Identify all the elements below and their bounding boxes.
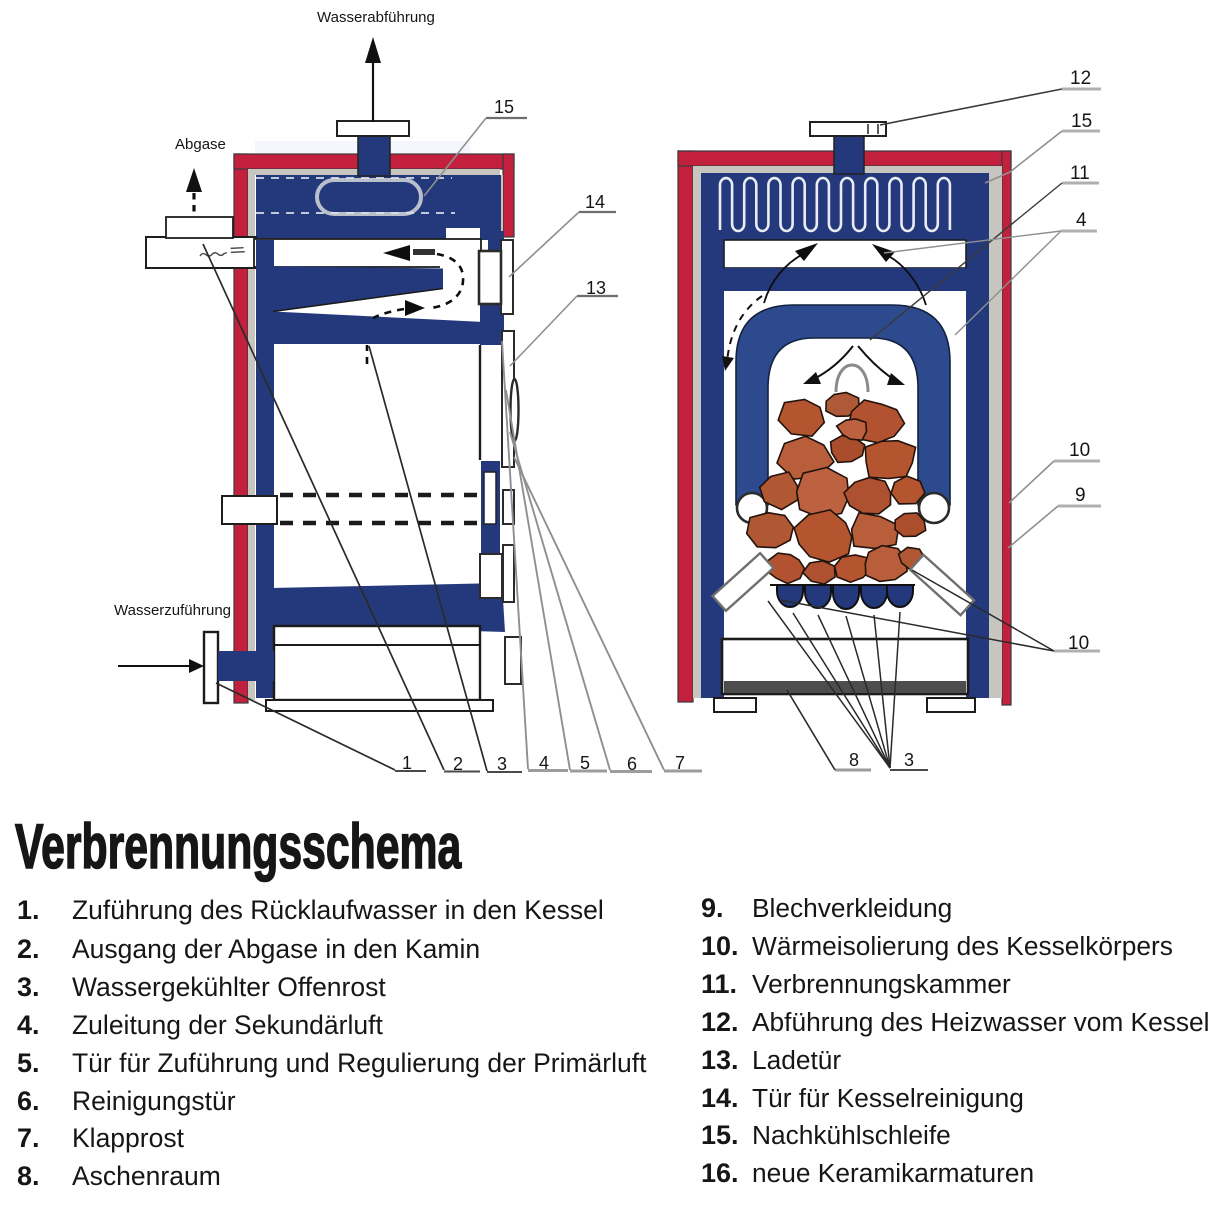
- svg-text:11: 11: [1070, 163, 1090, 184]
- svg-text:9.: 9.: [701, 893, 724, 923]
- svg-text:12: 12: [1070, 68, 1091, 89]
- svg-text:Nachkühlschleife: Nachkühlschleife: [752, 1120, 951, 1150]
- svg-text:Klapprost: Klapprost: [72, 1123, 185, 1153]
- svg-text:Verbrennungsschema: Verbrennungsschema: [15, 812, 462, 882]
- svg-text:4: 4: [1076, 210, 1087, 231]
- svg-text:Tür für Zuführung und Regulier: Tür für Zuführung und Regulierung der Pr…: [72, 1048, 647, 1078]
- svg-text:Reinigungstür: Reinigungstür: [72, 1086, 236, 1116]
- svg-text:6.: 6.: [17, 1086, 40, 1116]
- svg-text:Verbrennungskammer: Verbrennungskammer: [752, 969, 1011, 999]
- svg-text:4.: 4.: [17, 1010, 40, 1040]
- svg-text:8.: 8.: [17, 1161, 40, 1191]
- svg-text:15: 15: [494, 97, 514, 117]
- svg-text:Zuführung des Rücklaufwasser i: Zuführung des Rücklaufwasser in den Kess…: [72, 895, 604, 925]
- svg-text:16.: 16.: [701, 1158, 739, 1188]
- svg-text:5.: 5.: [17, 1048, 40, 1078]
- svg-text:Ausgang der Abgase in den Kami: Ausgang der Abgase in den Kamin: [72, 934, 480, 964]
- svg-text:10: 10: [1069, 440, 1090, 461]
- svg-text:15.: 15.: [701, 1120, 739, 1150]
- svg-text:14.: 14.: [701, 1083, 739, 1113]
- svg-text:Wassergekühlter Offenrost: Wassergekühlter Offenrost: [72, 972, 386, 1002]
- svg-text:3: 3: [904, 750, 914, 770]
- svg-text:2.: 2.: [17, 934, 40, 964]
- svg-text:Ladetür: Ladetür: [752, 1045, 841, 1075]
- svg-text:Wasserzuführung: Wasserzuführung: [114, 602, 231, 619]
- svg-text:Blechverkleidung: Blechverkleidung: [752, 893, 952, 923]
- svg-text:15: 15: [1071, 111, 1092, 132]
- svg-text:7.: 7.: [17, 1123, 40, 1153]
- svg-text:13.: 13.: [701, 1045, 739, 1075]
- svg-text:Wasserabführung: Wasserabführung: [317, 9, 435, 26]
- svg-text:Zuleitung der Sekundärluft: Zuleitung der Sekundärluft: [72, 1010, 383, 1040]
- svg-text:Tür für Kesselreinigung: Tür für Kesselreinigung: [752, 1083, 1024, 1113]
- svg-text:neue Keramikarmaturen: neue Keramikarmaturen: [752, 1158, 1034, 1188]
- svg-text:10.: 10.: [701, 931, 739, 961]
- svg-text:8: 8: [849, 750, 859, 770]
- svg-text:1.: 1.: [17, 895, 40, 925]
- svg-text:Aschenraum: Aschenraum: [72, 1161, 221, 1191]
- svg-text:Abführung des Heizwasser vom K: Abführung des Heizwasser vom Kessel: [752, 1007, 1210, 1037]
- svg-text:14: 14: [585, 192, 605, 212]
- svg-text:Abgase: Abgase: [175, 136, 226, 153]
- svg-text:Wärmeisolierung des Kesselkörp: Wärmeisolierung des Kesselkörpers: [752, 931, 1173, 961]
- svg-text:3.: 3.: [17, 972, 40, 1002]
- svg-text:9: 9: [1075, 485, 1086, 506]
- svg-text:12.: 12.: [701, 1007, 739, 1037]
- svg-text:11.: 11.: [701, 969, 737, 999]
